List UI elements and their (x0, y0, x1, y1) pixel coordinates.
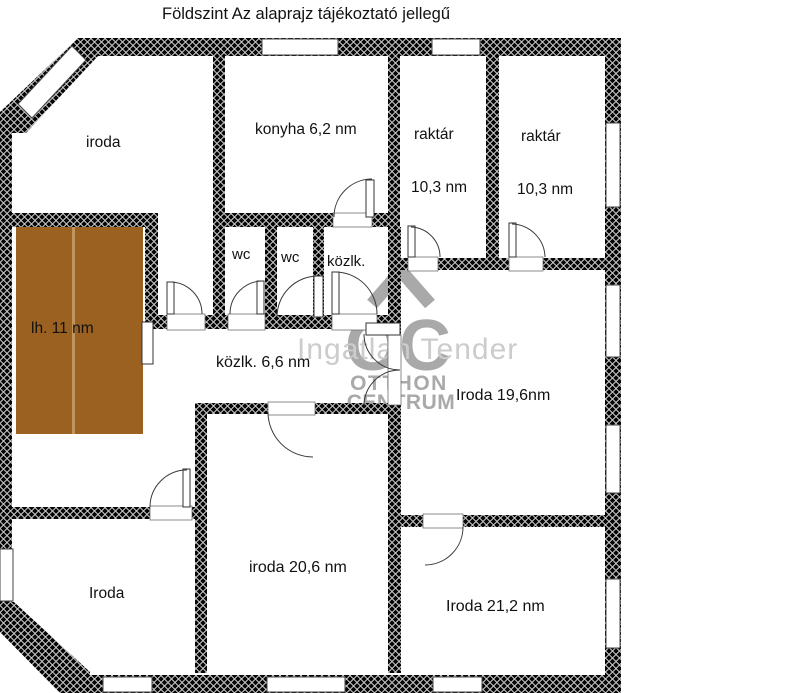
door-leaf-storage2 (509, 223, 516, 257)
window-top-kitchen (262, 39, 338, 55)
opening-storage2 (509, 257, 543, 271)
window-bottom-a (103, 677, 152, 692)
window-top-storage (432, 39, 480, 55)
wall-left (0, 112, 12, 602)
opening-office-br (423, 514, 463, 528)
wall-kitchen-storage (388, 56, 400, 227)
room-area-storage2: 10,3 nm (517, 181, 573, 198)
room-label-staircase: lh. 11 nm (31, 320, 94, 337)
window-left-office (0, 549, 13, 601)
room-label-wc1: wc (231, 246, 251, 263)
door-leaf-wc2 (314, 276, 323, 317)
door-leaf-double-top (366, 323, 400, 335)
room-label-storage2: raktár (521, 128, 561, 145)
opening-wc1 (228, 314, 265, 330)
wall-below-office (0, 213, 158, 227)
plan-title: Földszint Az alaprajz tájékoztató jelleg… (162, 5, 450, 23)
wall-office-bl-top-a (0, 507, 150, 519)
door-leaf-kitchen (366, 180, 374, 217)
room-label-hall-main: közlk. 6,6 nm (216, 354, 310, 371)
room-label-wc2: wc (280, 249, 300, 266)
wall-below-kitchen-b (372, 213, 400, 227)
room-label-office-right: Iroda 19,6nm (456, 387, 550, 404)
wall-bottom (82, 675, 621, 693)
opening-office-bl (150, 506, 192, 520)
watermark-overlay-text: Ingatlan Tender (297, 333, 518, 366)
room-label-kitchen: konyha 6,2 nm (255, 121, 357, 138)
room-area-storage1: 10,3 nm (411, 179, 467, 196)
wall-office-right-divider-b (463, 515, 621, 527)
floor-plan: Földszint Az alaprajz tájékoztató jelleg… (0, 0, 800, 693)
door-leaf-office-bl (183, 469, 190, 507)
wall-spine-lower (388, 405, 401, 673)
room-label-hall-small: közlk. (327, 253, 365, 270)
window-right-office2 (606, 425, 620, 493)
room-label-office-center: iroda 20,6 nm (249, 559, 347, 576)
opening-storage1 (408, 257, 438, 271)
wall-top (77, 38, 621, 56)
wall-storage-divider (486, 56, 499, 270)
door-leaf-vestibule (167, 282, 174, 314)
wall-vestibule-left (145, 227, 158, 329)
wall-storage-bottom-c (543, 258, 621, 270)
opening-vestibule (167, 314, 205, 330)
wall-storage-bottom-b (438, 258, 509, 270)
wall-office-center-left (195, 414, 207, 673)
window-bottom-c (433, 677, 482, 692)
wall-wc-divider (265, 227, 277, 315)
door-leaf-storage1 (408, 226, 415, 257)
room-label-office-top-left: iroda (86, 134, 121, 151)
wall-wc-bottom-b (205, 315, 228, 329)
opening-office-center (268, 402, 315, 415)
room-label-office-bottom-right: Iroda 21,2 nm (446, 598, 545, 615)
wall-office-right-divider-a (401, 515, 423, 527)
wall-office-center-top-a (195, 403, 268, 414)
window-right-storage2 (606, 123, 620, 207)
door-leaf-wc1 (257, 281, 264, 314)
room-label-office-bottom-left: Iroda (89, 585, 125, 602)
door-leaf-hall-small (332, 272, 339, 314)
wall-below-kitchen-a (213, 213, 333, 227)
door-leaf-staircase (142, 322, 153, 364)
floor-plan-page: Földszint Az alaprajz tájékoztató jelleg… (0, 0, 800, 693)
wall-office-bl-top-b (192, 507, 207, 519)
window-right-office3 (606, 579, 620, 648)
window-bottom-b (267, 677, 345, 692)
room-label-storage1: raktár (414, 126, 454, 143)
wall-office-kitchen (213, 56, 225, 215)
wall-wc1-left (213, 227, 225, 315)
window-right-office1 (606, 285, 620, 357)
